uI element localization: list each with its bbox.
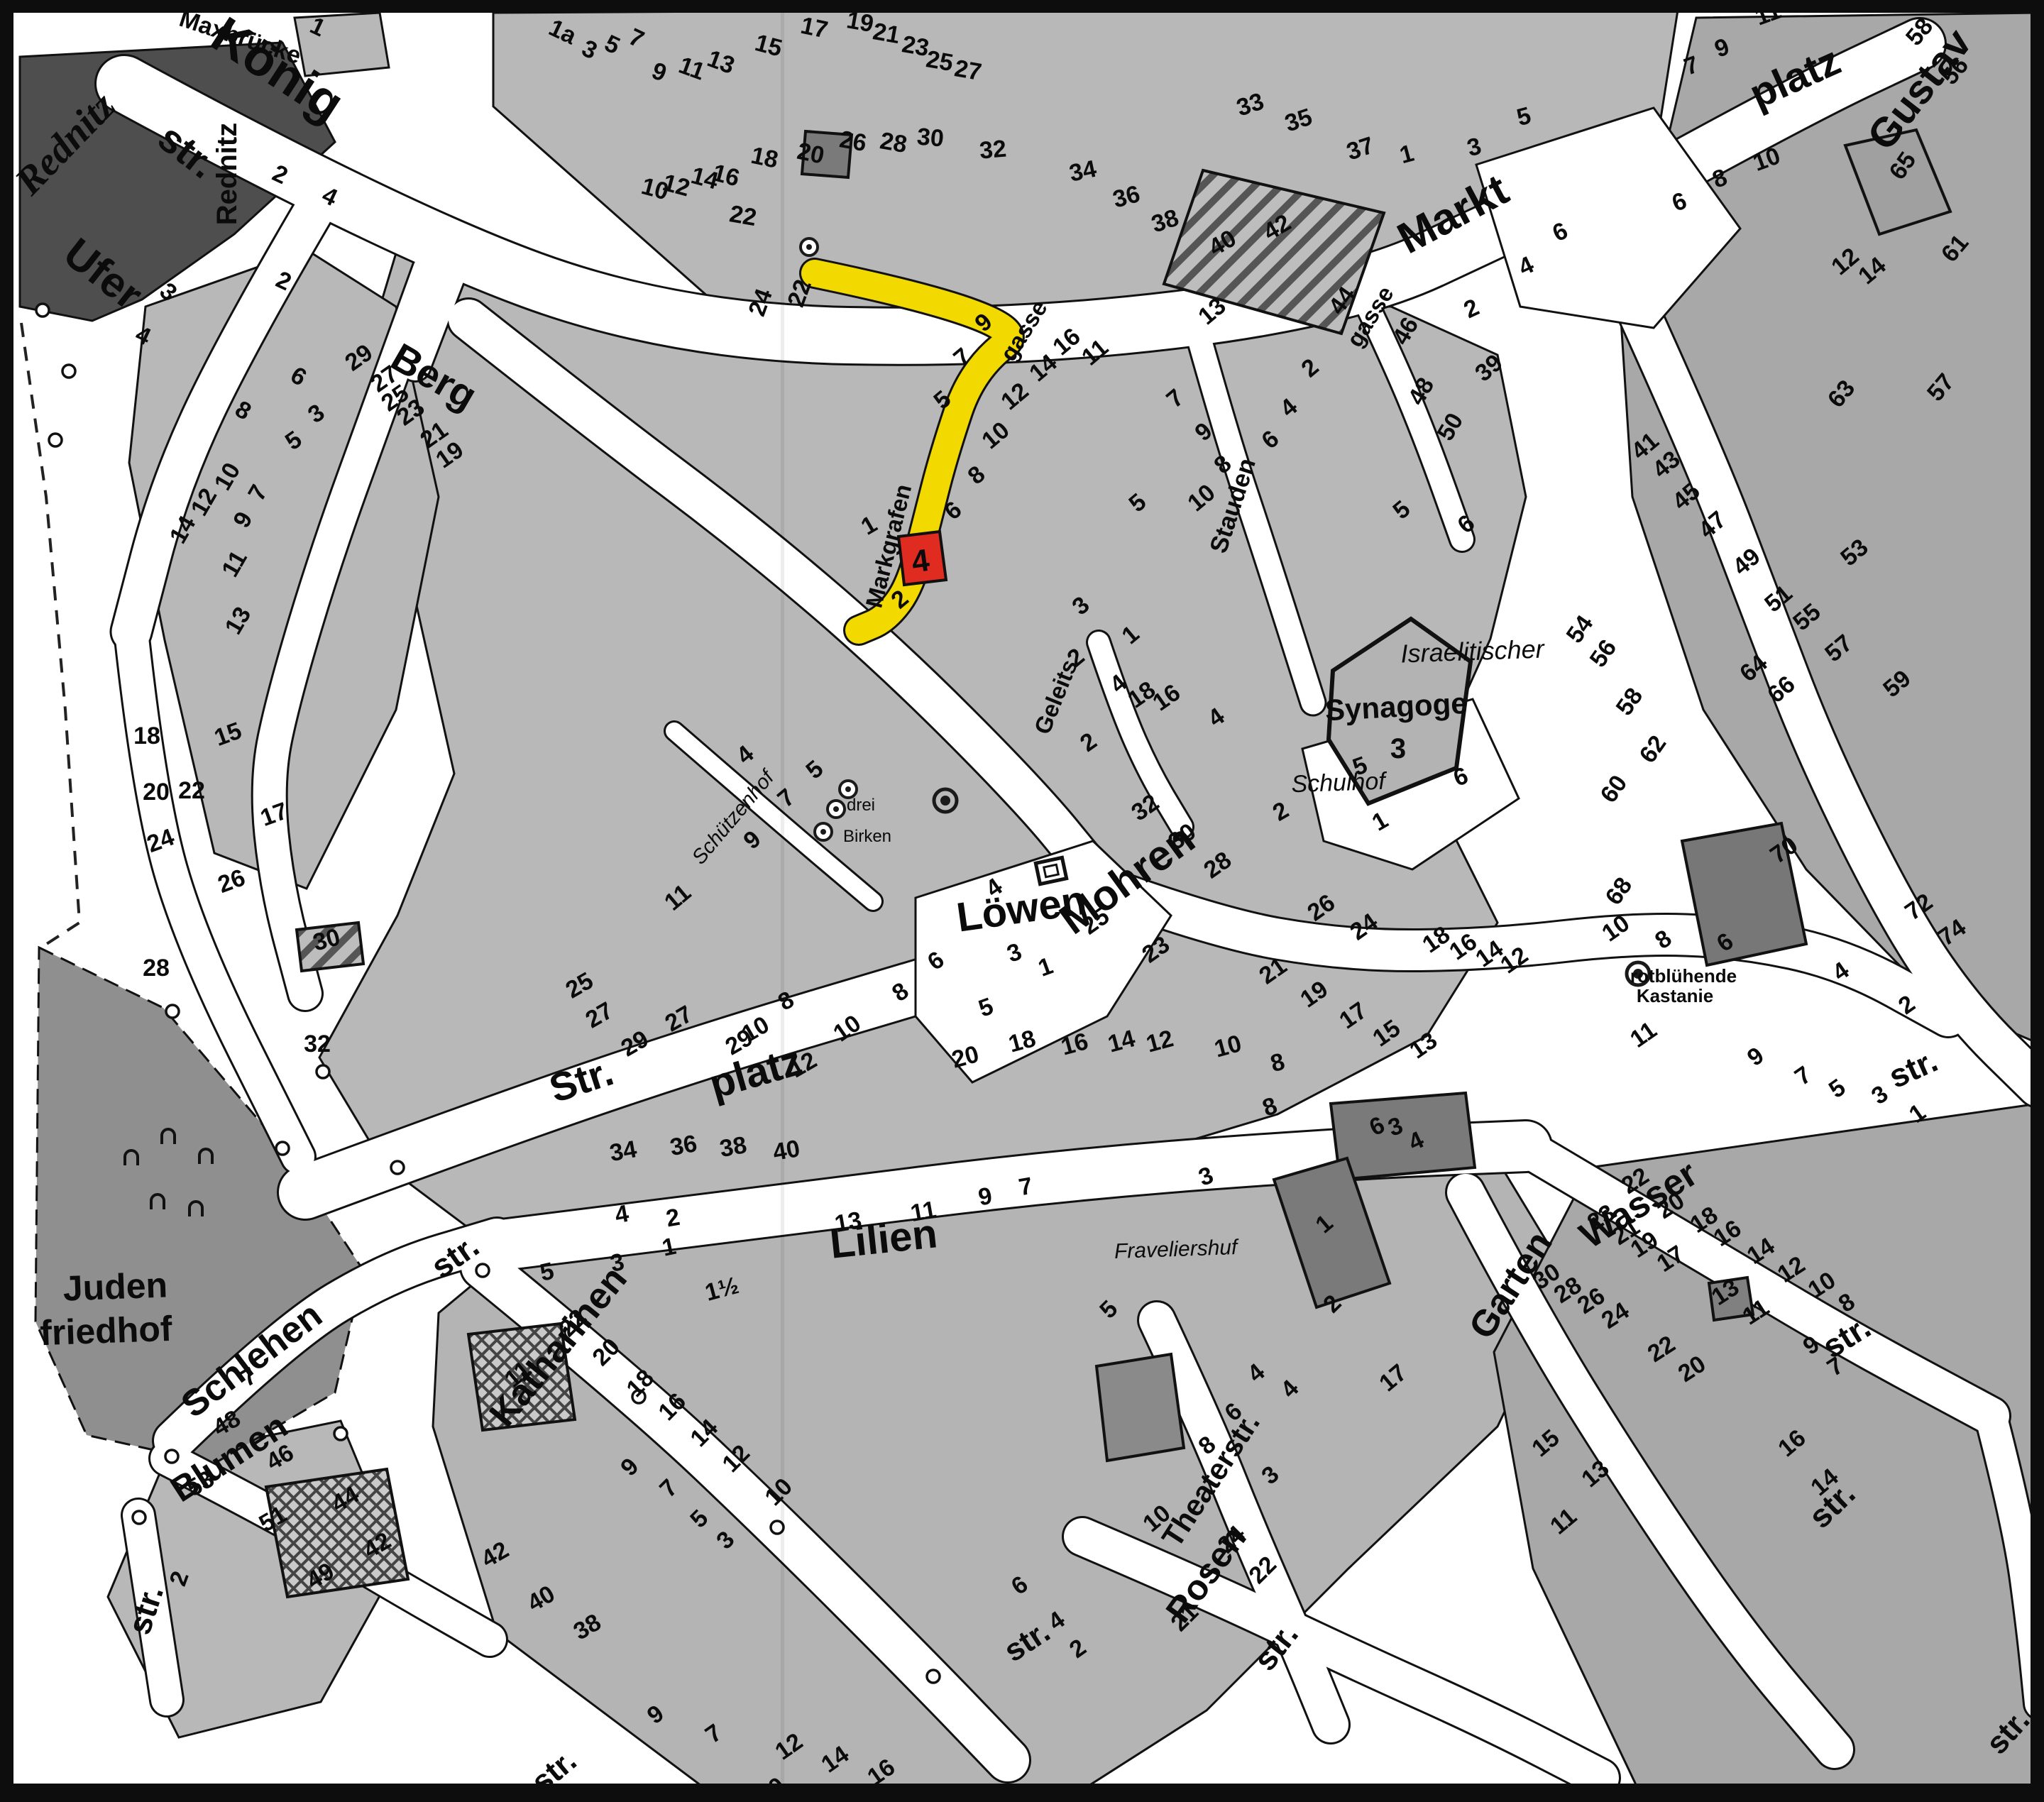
house-number: 34 bbox=[1067, 155, 1099, 187]
hof-baum-tree-icon-core bbox=[806, 244, 812, 250]
street-label-israelitischer: Israelitischer bbox=[1400, 634, 1546, 668]
baum-dunkel-tree-icon-core bbox=[940, 796, 950, 806]
birke-1-tree-icon-core bbox=[845, 786, 851, 792]
house-number: 25 bbox=[924, 45, 955, 77]
boundary-marker bbox=[166, 1005, 179, 1018]
house-number: 30 bbox=[916, 123, 945, 152]
birke-3-tree-icon-core bbox=[820, 829, 826, 835]
street-label-birken: Birken bbox=[843, 827, 891, 846]
house-number: 34 bbox=[608, 1136, 639, 1167]
house-number: 11 bbox=[908, 1196, 938, 1227]
house-number: 36 bbox=[668, 1130, 699, 1161]
boundary-marker bbox=[476, 1264, 489, 1277]
boundary-marker bbox=[334, 1427, 347, 1440]
house-number: 22 bbox=[178, 777, 205, 804]
house-number: 21 bbox=[871, 18, 902, 49]
house-number: 20 bbox=[795, 138, 827, 170]
house-number: 20 bbox=[143, 779, 170, 806]
house-number: 18 bbox=[133, 723, 160, 749]
boundary-marker bbox=[391, 1161, 404, 1174]
boundary-marker bbox=[165, 1450, 178, 1463]
scan-fold-line bbox=[781, 0, 784, 1802]
street-label-juden: Juden bbox=[62, 1265, 168, 1308]
house-number: 26 bbox=[837, 126, 869, 157]
birke-2-tree-icon-core bbox=[833, 806, 839, 812]
house-number: 13 bbox=[833, 1207, 864, 1238]
house-number: 32 bbox=[979, 135, 1008, 164]
house-number: 28 bbox=[143, 955, 170, 982]
house-number: 32 bbox=[304, 1031, 331, 1057]
street-label-schulhof: Schulhof bbox=[1291, 768, 1388, 798]
boundary-marker bbox=[133, 1511, 145, 1524]
house-number: 28 bbox=[878, 127, 909, 158]
street-label-kastanie: Kastanie bbox=[1637, 985, 1713, 1006]
house-number: 17 bbox=[798, 12, 830, 44]
boundary-marker bbox=[276, 1142, 289, 1155]
boundary-marker bbox=[927, 1670, 940, 1683]
synagoge-number: 3 bbox=[1390, 733, 1406, 764]
house-number: 27 bbox=[952, 55, 984, 86]
theater-dunkel bbox=[1097, 1354, 1184, 1461]
boundary-marker bbox=[317, 1065, 329, 1078]
street-label-fraveliershuf: Fraveliershuf bbox=[1114, 1236, 1239, 1263]
city-map-svg: MaxbrückeRednitzRednitzKönigstr.UferBerg… bbox=[0, 0, 2044, 1802]
street-label-rotbl-hende: rotblühende bbox=[1630, 965, 1737, 987]
house-number: 40 bbox=[771, 1135, 802, 1166]
street-label-friedhof: friedhof bbox=[39, 1309, 172, 1353]
map-frame-bottom bbox=[0, 1784, 2044, 1802]
street-label-rednitz: Rednitz bbox=[211, 123, 243, 225]
boundary-marker bbox=[62, 365, 75, 378]
street-label-drei: drei bbox=[847, 796, 875, 815]
boundary-marker bbox=[49, 434, 62, 446]
house-number: 22 bbox=[727, 200, 759, 231]
house-number: 18 bbox=[749, 142, 781, 174]
map-root: MaxbrückeRednitzRednitzKönigstr.UferBerg… bbox=[0, 0, 2044, 1802]
boundary-marker bbox=[36, 304, 49, 317]
house-number: 38 bbox=[718, 1131, 749, 1163]
